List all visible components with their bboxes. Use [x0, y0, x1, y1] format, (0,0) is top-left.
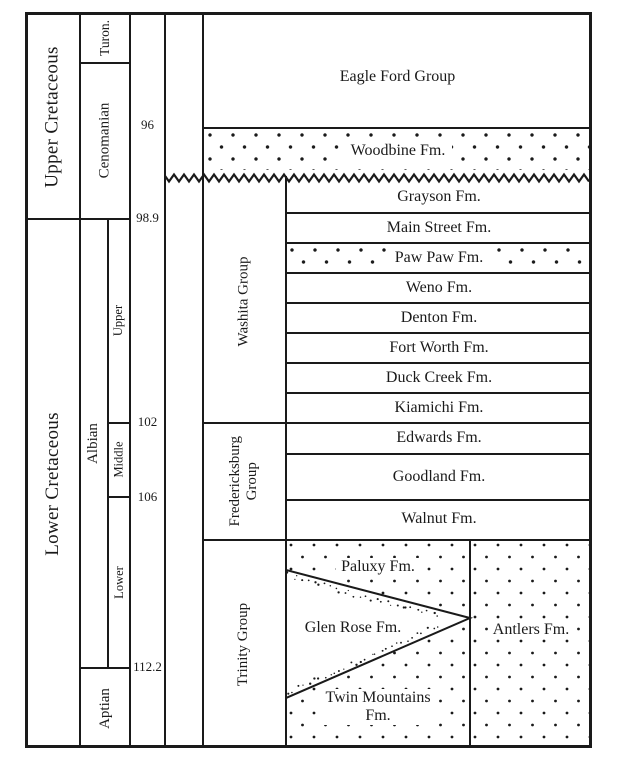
chart-outer-border [25, 12, 592, 748]
stratigraphic-column-figure: Upper Cretaceous Lower Cretaceous Turon.… [0, 0, 618, 766]
